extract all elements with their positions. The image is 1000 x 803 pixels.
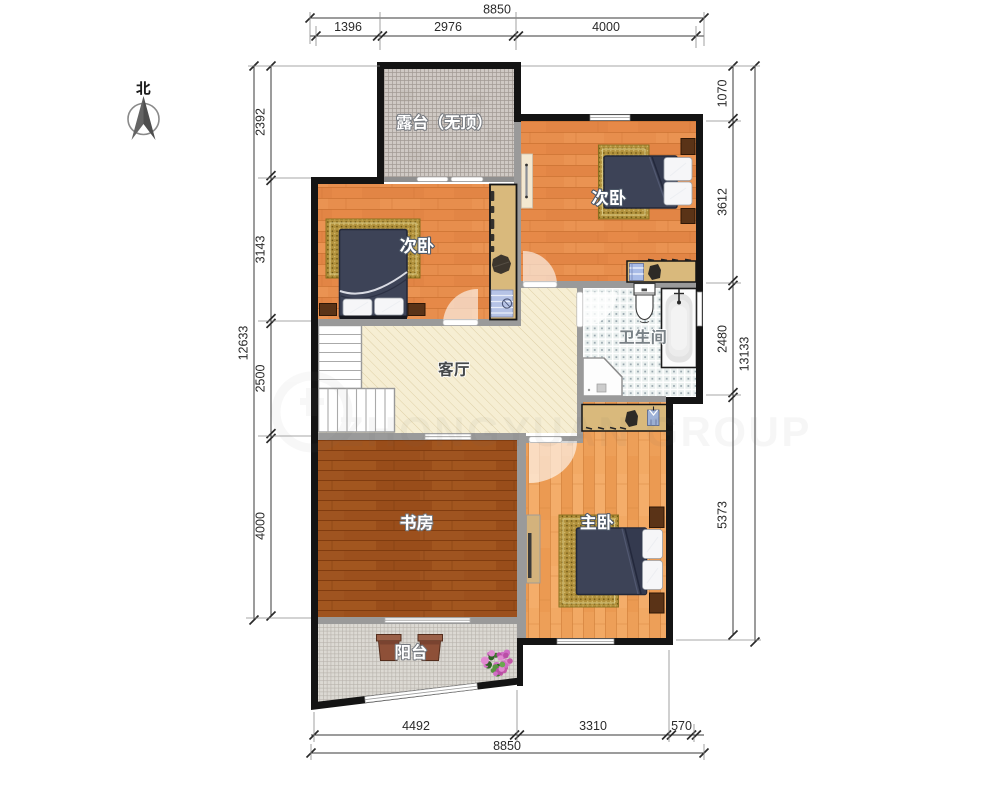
svg-text:570: 570 bbox=[671, 719, 692, 733]
svg-text:2392: 2392 bbox=[254, 108, 268, 136]
svg-text:ZHONGYUAN GROUP: ZHONGYUAN GROUP bbox=[338, 408, 812, 455]
svg-text:3612: 3612 bbox=[716, 188, 730, 216]
svg-text:8850: 8850 bbox=[483, 3, 511, 17]
svg-text:3143: 3143 bbox=[254, 236, 268, 264]
svg-text:1396: 1396 bbox=[334, 20, 362, 34]
svg-text:1070: 1070 bbox=[716, 80, 730, 108]
svg-text:2976: 2976 bbox=[434, 20, 462, 34]
svg-text:4000: 4000 bbox=[592, 20, 620, 34]
svg-text:2480: 2480 bbox=[716, 325, 730, 353]
svg-text:13133: 13133 bbox=[738, 337, 752, 372]
svg-text:2500: 2500 bbox=[254, 365, 268, 393]
svg-text:4000: 4000 bbox=[254, 512, 268, 540]
svg-text:5373: 5373 bbox=[716, 501, 730, 529]
svg-text:12633: 12633 bbox=[237, 326, 251, 361]
svg-text:4492: 4492 bbox=[402, 719, 430, 733]
svg-text:3310: 3310 bbox=[579, 719, 607, 733]
